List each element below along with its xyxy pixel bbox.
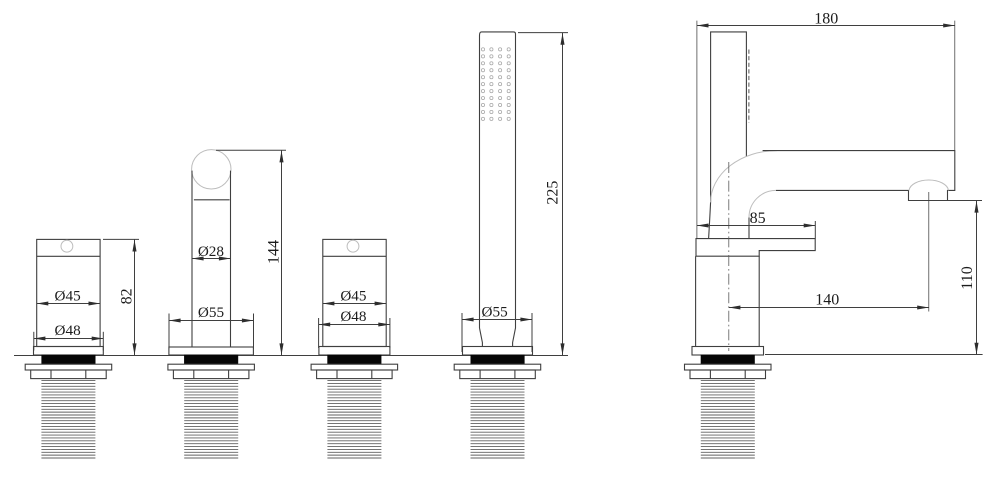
svg-text:225: 225: [545, 181, 562, 205]
svg-text:Ø48: Ø48: [340, 308, 367, 325]
svg-text:144: 144: [266, 240, 283, 264]
svg-text:Ø48: Ø48: [55, 322, 82, 339]
svg-text:Ø45: Ø45: [340, 287, 366, 304]
svg-text:140: 140: [815, 292, 839, 309]
svg-text:85: 85: [750, 210, 766, 227]
svg-text:180: 180: [814, 10, 838, 27]
svg-text:Ø55: Ø55: [198, 304, 224, 321]
svg-text:Ø45: Ø45: [55, 288, 81, 305]
svg-text:Ø55: Ø55: [482, 303, 508, 320]
svg-text:82: 82: [119, 288, 136, 304]
svg-text:110: 110: [959, 266, 976, 289]
